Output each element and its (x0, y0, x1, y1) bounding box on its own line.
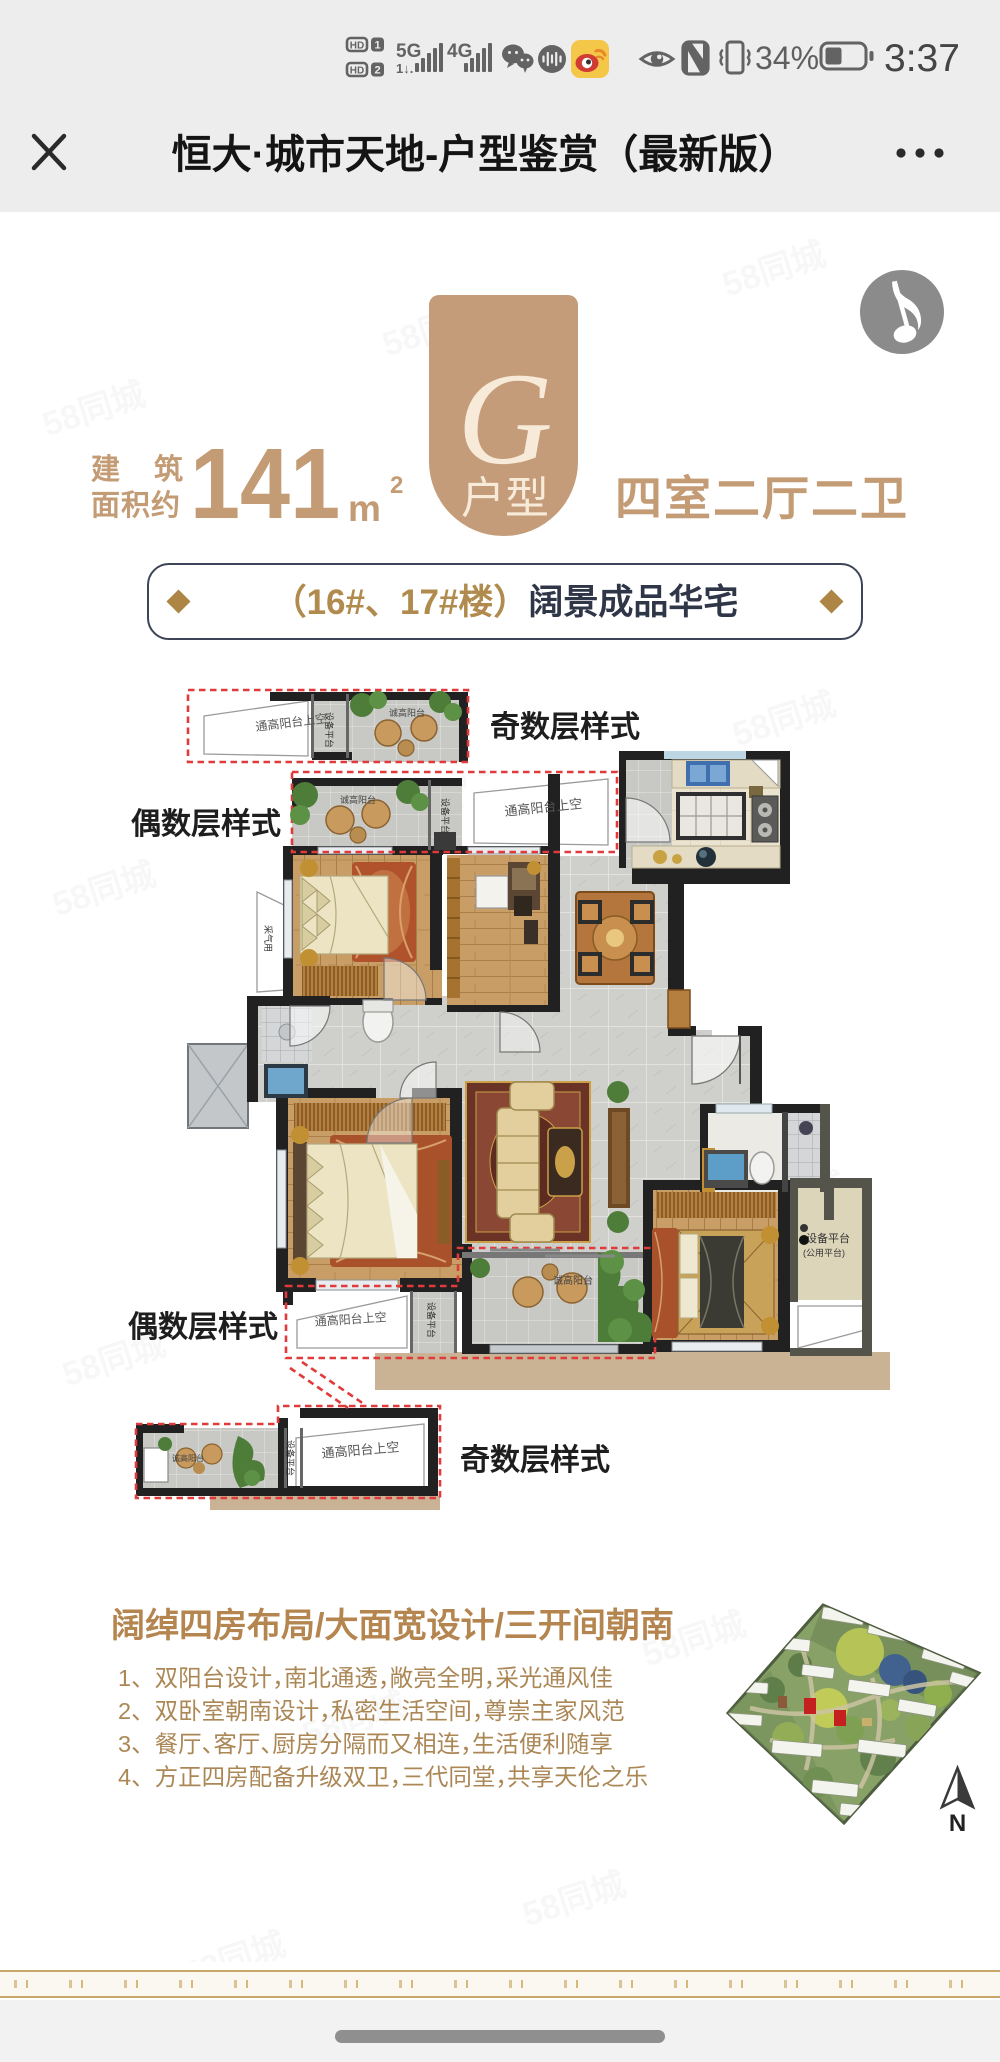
svg-text:设备平台: 设备平台 (324, 712, 335, 748)
svg-text:G: G (457, 345, 552, 492)
svg-text:4G: 4G (447, 41, 472, 62)
svg-text:诚高阳台: 诚高阳台 (553, 1274, 593, 1287)
svg-text:5G: 5G (396, 41, 421, 62)
svg-text:采气用: 采气用 (263, 925, 274, 952)
svg-text:设备平台: 设备平台 (806, 1231, 850, 1245)
svg-text:诚高阳台: 诚高阳台 (389, 707, 425, 718)
svg-text:户型: 户型 (461, 474, 549, 523)
svg-text:HD: HD (350, 41, 364, 52)
svg-text:设备平台: 设备平台 (285, 1440, 296, 1476)
svg-text:34%: 34% (755, 40, 819, 76)
svg-text:诚高阳台: 诚高阳台 (340, 794, 376, 805)
svg-text:2: 2 (374, 65, 380, 77)
svg-text:设备平台: 设备平台 (426, 1302, 437, 1338)
svg-text:（16#、17#楼）阔景成品华宅: （16#、17#楼）阔景成品华宅 (272, 582, 739, 622)
svg-text:恒大·城市天地-户型鉴赏（最新版）: 恒大·城市天地-户型鉴赏（最新版） (172, 133, 799, 177)
svg-text:1↓.: 1↓. (396, 61, 413, 76)
svg-text:HD: HD (350, 66, 364, 77)
svg-text:3:37: 3:37 (884, 37, 960, 80)
svg-text:(公用平台): (公用平台) (803, 1247, 845, 1258)
svg-text:设备平台: 设备平台 (440, 798, 451, 834)
svg-text:诚高阳台: 诚高阳台 (172, 1453, 204, 1463)
svg-text:N: N (949, 1810, 966, 1835)
svg-text:1: 1 (374, 40, 380, 52)
